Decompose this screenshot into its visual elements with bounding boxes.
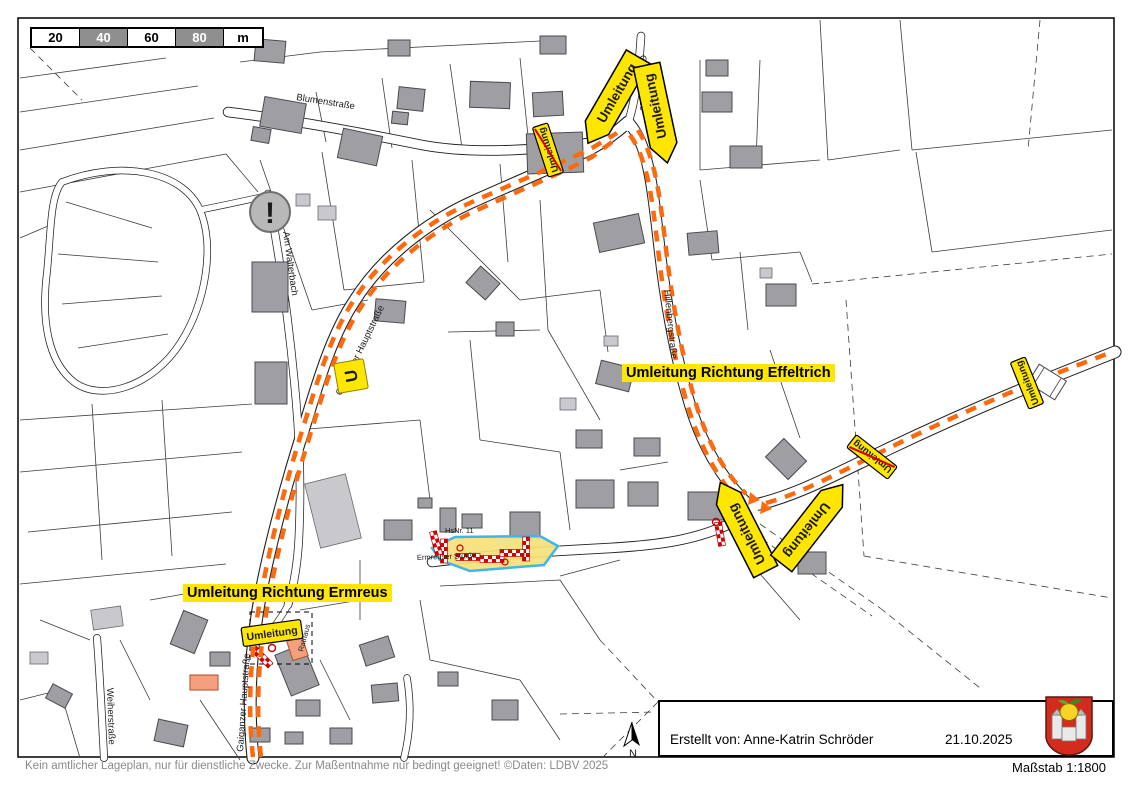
coat-of-arms <box>1044 695 1094 757</box>
scale-segment: 80 <box>176 29 224 46</box>
scale-segment: 40 <box>80 29 128 46</box>
alert-circle: ! <box>250 192 290 232</box>
map-canvas: Blumenstraße Gartenstraße Am Walterbach … <box>0 0 1132 800</box>
scale-segment: 20 <box>32 29 80 46</box>
house-number-label: HsNr. 11 <box>445 526 474 535</box>
created-by-text: Erstellt von: Anne-Katrin Schröder <box>670 732 873 747</box>
disclaimer-text: Kein amtlicher Lageplan, nur für dienstl… <box>25 760 608 772</box>
scale-ratio-label: Maßstab 1:1800 <box>1012 760 1106 775</box>
route-label-effeltrich: Umleitung Richtung Effeltrich <box>622 364 835 382</box>
street-weiherstrasse: Weiherstraße <box>104 688 117 745</box>
detour-map-page: Blumenstraße Gartenstraße Am Walterbach … <box>0 0 1132 800</box>
scale-segment: 60 <box>128 29 176 46</box>
u-detour-shield: U <box>334 359 369 394</box>
north-label: N <box>629 748 637 760</box>
scale-unit: m <box>224 29 262 46</box>
alert-exclamation: ! <box>265 197 275 230</box>
route-label-ermreus: Umleitung Richtung Ermreus <box>183 584 392 602</box>
scale-bar: 20 40 60 80 m <box>30 27 264 48</box>
date-text: 21.10.2025 <box>945 732 1013 747</box>
